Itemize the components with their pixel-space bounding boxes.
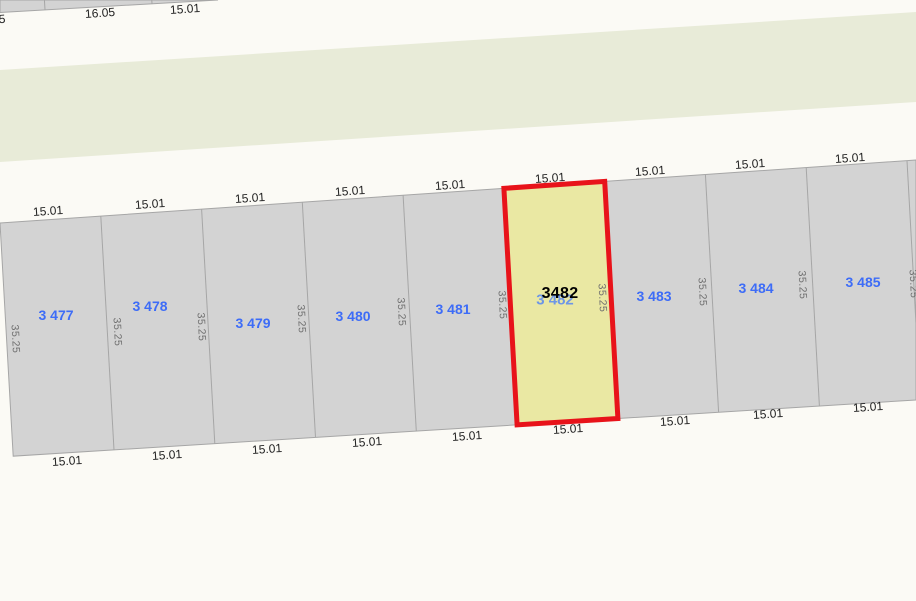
frontage-dimension-label: 15.01	[352, 435, 383, 449]
frontage-dimension-label: 15.01	[452, 429, 483, 443]
lot-number-label: 3 479	[235, 316, 270, 330]
lot-number-label: 3 484	[738, 281, 773, 295]
lot-number-label: 3 480	[335, 309, 370, 323]
frontage-dimension-label: 15.01	[135, 197, 166, 211]
frontage-dimension-label: 15.01	[635, 164, 666, 178]
frontage-dimension-label: 15.01	[835, 151, 866, 165]
lot-number-label: 3 485	[845, 275, 880, 289]
frontage-dimension-label: 5	[0, 13, 6, 25]
frontage-dimension-label: 15.01	[152, 448, 183, 462]
depth-dimension-label: 35.25	[796, 270, 808, 299]
lot-number-label: 3 483	[636, 289, 671, 303]
frontage-dimension-label: 15.01	[753, 407, 784, 421]
depth-dimension-label: 35.25	[395, 297, 407, 326]
frontage-dimension-label: 15.01	[335, 184, 366, 198]
depth-dimension-label: 35.25	[596, 283, 608, 312]
frontage-dimension-label: 15.01	[435, 178, 466, 192]
lot-number-label: 3 478	[132, 299, 167, 313]
map-labels-layer: 516.0515.0115.0115.0115.0115.0115.0115.0…	[0, 0, 916, 601]
lot-number-label: 3 477	[38, 308, 73, 322]
depth-dimension-label: 35.25	[195, 312, 207, 341]
depth-dimension-label: 35.25	[907, 269, 916, 298]
frontage-dimension-label: 15.01	[735, 157, 766, 171]
parcel-map: 516.0515.0115.0115.0115.0115.0115.0115.0…	[0, 0, 916, 601]
depth-dimension-label: 35.25	[111, 317, 123, 346]
frontage-dimension-label: 15.01	[170, 2, 201, 16]
frontage-dimension-label: 15.01	[535, 171, 566, 185]
depth-dimension-label: 35.25	[496, 290, 508, 319]
depth-dimension-label: 35.25	[9, 324, 21, 353]
frontage-dimension-label: 15.01	[252, 442, 283, 456]
frontage-dimension-label: 15.01	[33, 204, 64, 218]
frontage-dimension-label: 15.01	[52, 454, 83, 468]
frontage-dimension-label: 15.01	[660, 414, 691, 428]
frontage-dimension-label: 15.01	[553, 422, 584, 436]
depth-dimension-label: 35.25	[696, 277, 708, 306]
selected-lot-number-label: 3482	[542, 286, 579, 302]
frontage-dimension-label: 15.01	[235, 191, 266, 205]
lot-number-label: 3 481	[435, 302, 470, 316]
depth-dimension-label: 35.25	[295, 304, 307, 333]
frontage-dimension-label: 16.05	[85, 6, 116, 20]
frontage-dimension-label: 15.01	[853, 400, 884, 414]
